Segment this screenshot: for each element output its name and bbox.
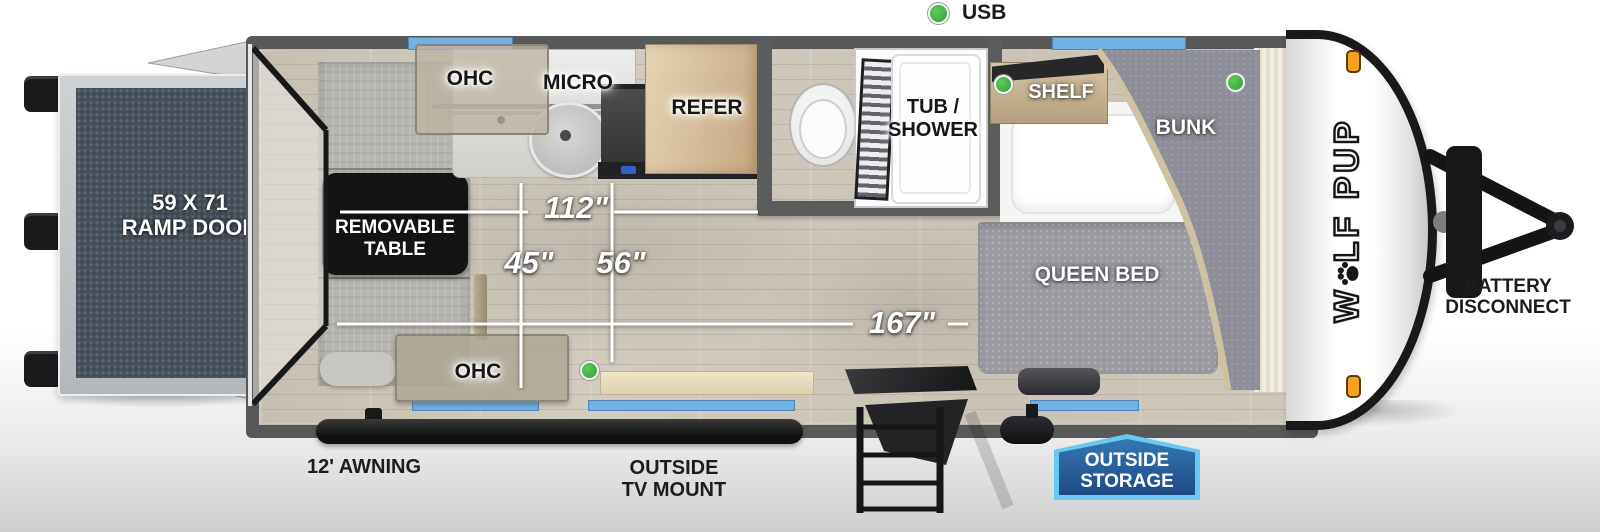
outside-storage-line2: STORAGE [1059,471,1195,492]
brand-text-w: W [1328,286,1366,322]
usb-legend-dot [928,3,949,24]
clearance-light [1346,50,1361,73]
micro-label: MICRO [528,71,628,95]
usb-port-dot [994,75,1013,94]
battery-line2: DISCONNECT [1428,297,1588,318]
clearance-light [1346,375,1361,398]
stabilizer-mount [1026,404,1038,418]
usb-port-dot [1226,73,1245,92]
usb-port-dot [580,361,599,380]
outside-storage-line1: OUTSIDE [1059,450,1195,471]
queen-bed-label: QUEEN BED [1017,263,1177,287]
brand-text-rest: LF PUP [1328,118,1366,263]
brand-logo: WLF PUP [1328,90,1376,350]
tub-label-line1: TUB / [873,96,993,119]
ohc-rear-label: OHC [438,360,518,384]
outside-storage-badge: OUTSIDE STORAGE [1054,434,1200,500]
dim-45: 45" [489,245,569,281]
usb-legend-label: USB [962,1,1022,25]
shelf-label: SHELF [1011,81,1111,104]
dim-56: 56" [581,245,661,281]
awning-tube [316,419,803,444]
awning-label: 12' AWNING [284,456,444,479]
battery-disconnect-label: BATTERY DISCONNECT [1428,276,1588,318]
battery-line1: BATTERY [1428,276,1588,297]
sink-drain [560,130,571,141]
bunk-panel [1080,44,1296,396]
window-strip [1030,400,1139,411]
tub-label-line2: SHOWER [873,119,993,142]
toilet-lid [799,99,847,159]
bunk-label: BUNK [1136,116,1236,140]
tv-mount-line2: TV MOUNT [594,479,754,501]
refer-label: REFER [657,96,757,120]
tub-shower-label: TUB / SHOWER [873,96,993,142]
outside-storage-badge-inner: OUTSIDE STORAGE [1059,439,1195,495]
dim-167: 167" [852,305,952,341]
floorplan-canvas: 59 X 71 RAMP DOOR REMOVABLE TABLE [0,0,1600,532]
stabilizer-cylinder [1000,416,1054,444]
ohc-front-label: OHC [430,67,510,91]
tv-mount-label: OUTSIDE TV MOUNT [594,457,754,501]
dimension-lines [300,170,1000,400]
paw-print-icon [1336,262,1360,286]
window-strip [588,400,795,411]
tv-mount-line1: OUTSIDE [594,457,754,479]
dim-112: 112" [526,190,626,226]
